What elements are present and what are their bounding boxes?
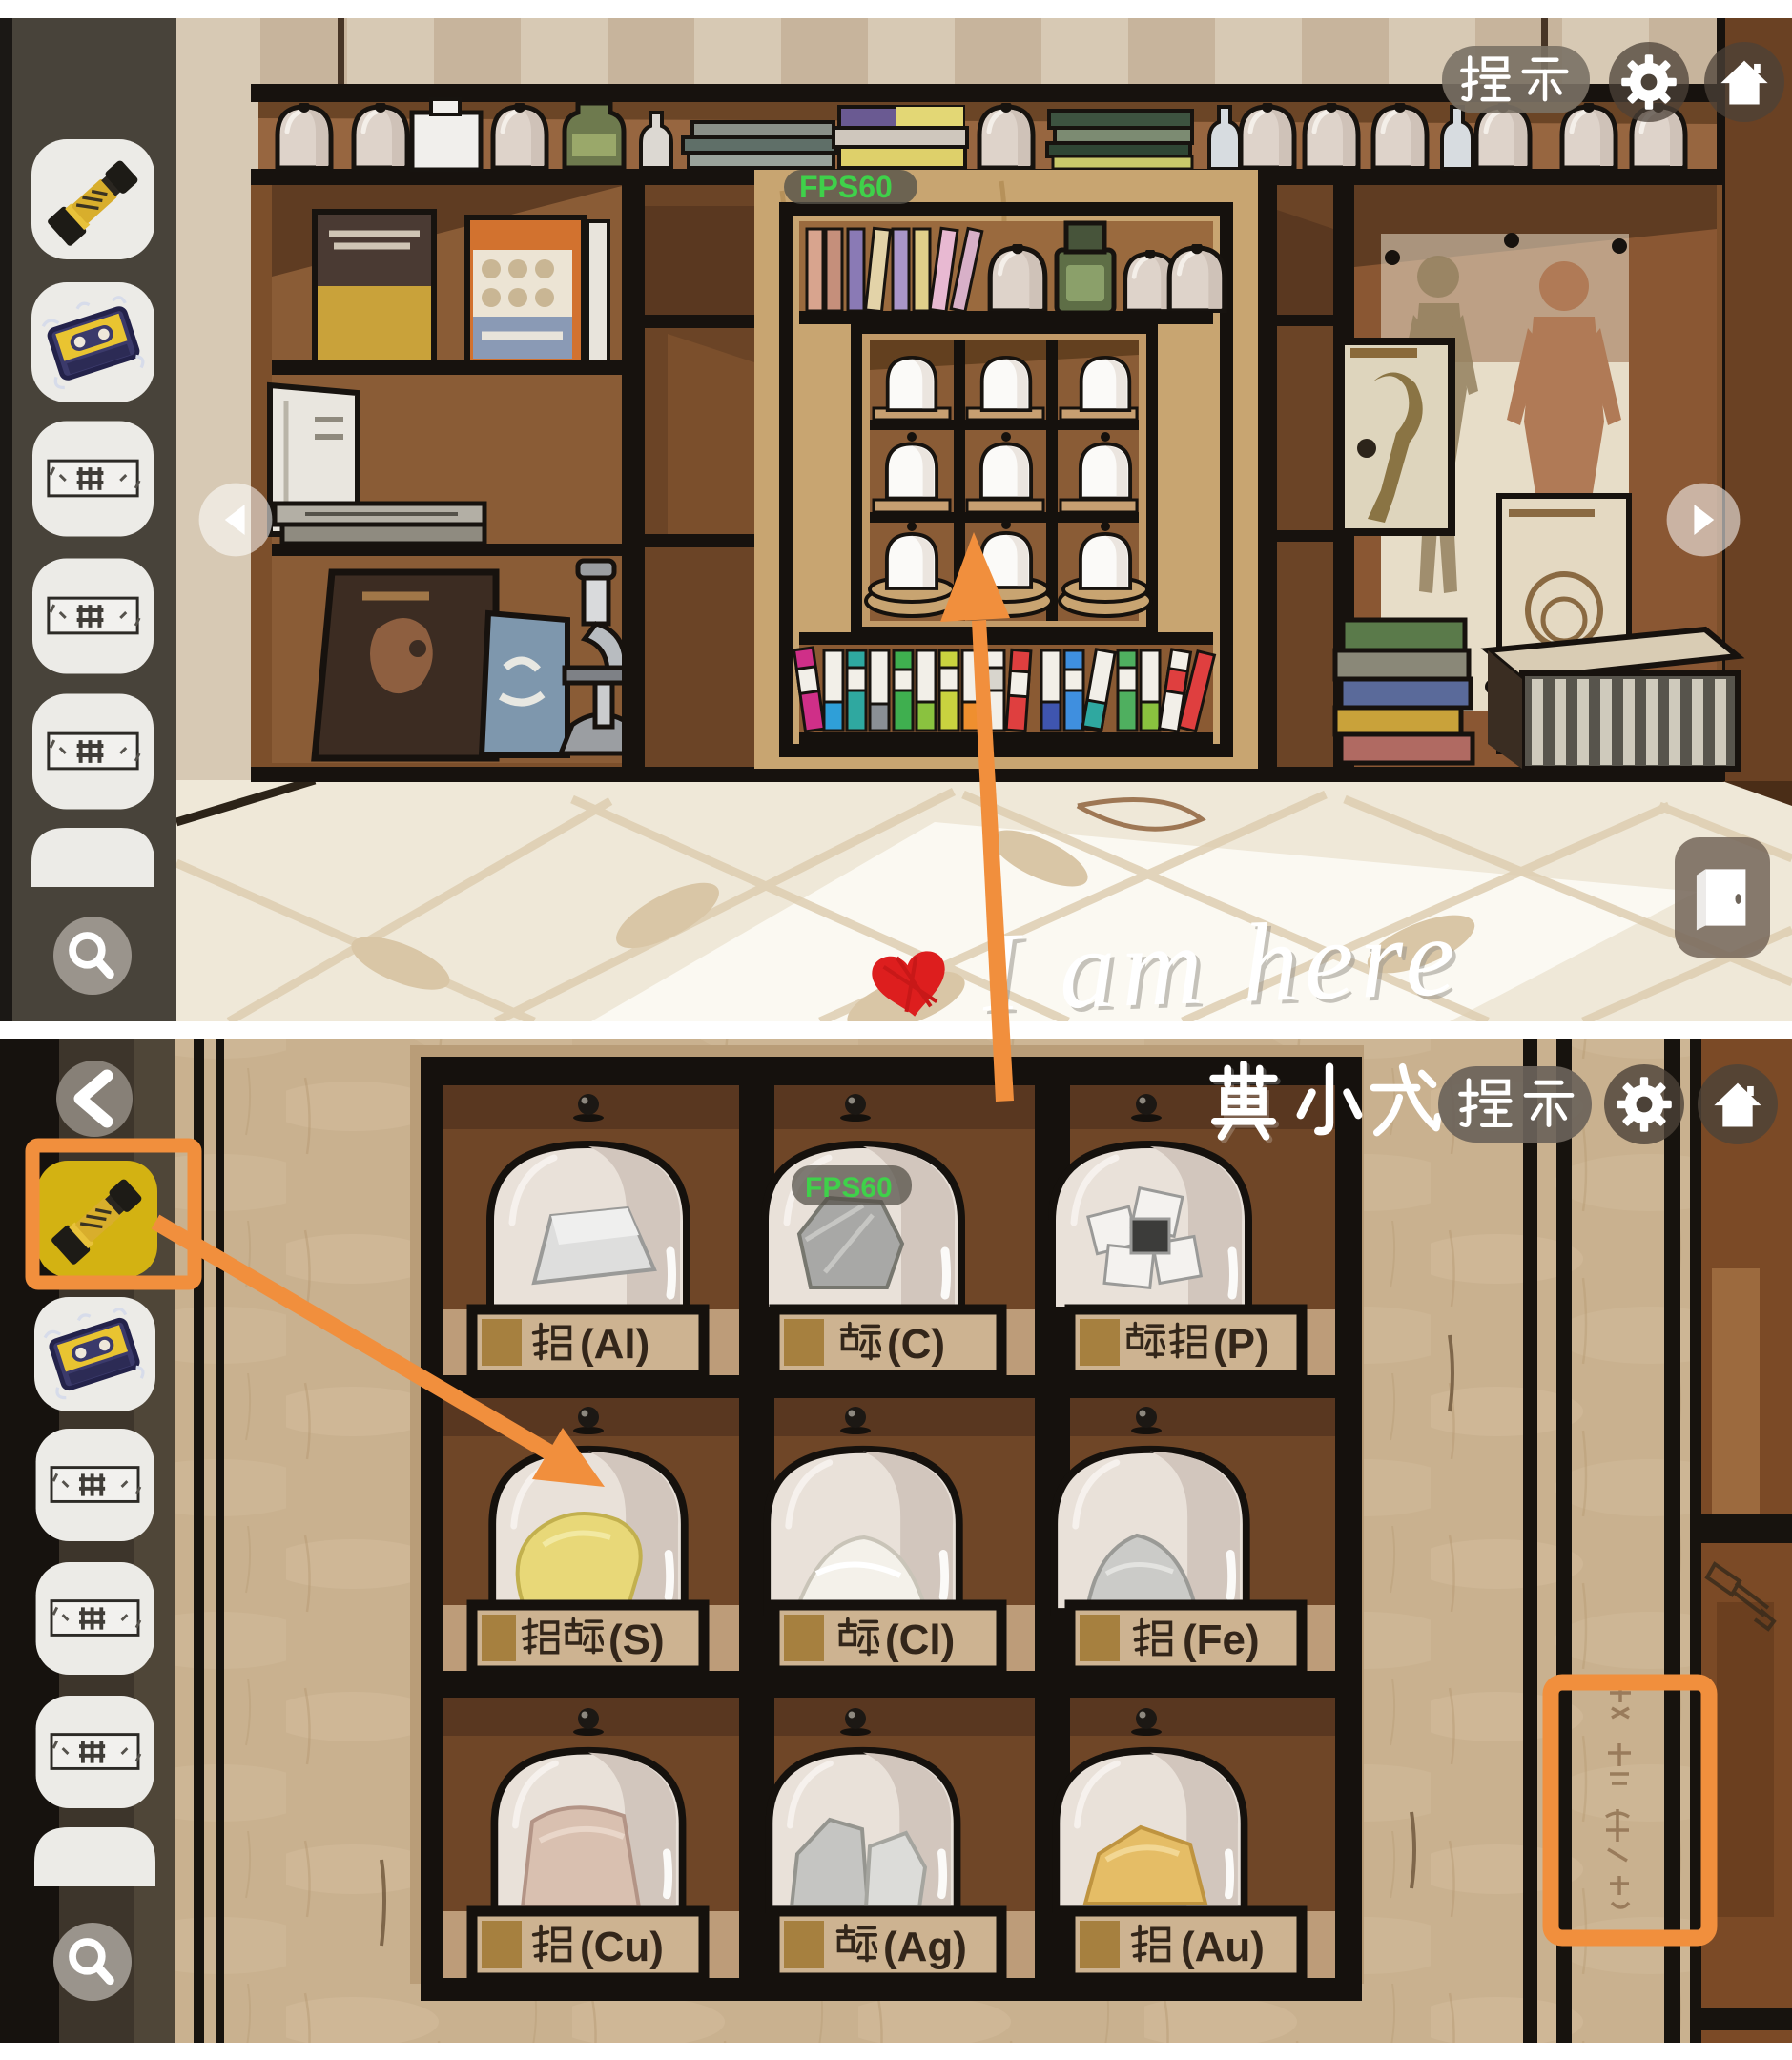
svg-text:(Al): (Al) <box>580 1321 649 1368</box>
svg-text:FPS60: FPS60 <box>805 1172 893 1204</box>
svg-text:(P): (P) <box>1213 1321 1269 1368</box>
svg-text:(Cu): (Cu) <box>580 1924 664 1970</box>
svg-text:(Au): (Au) <box>1181 1924 1265 1970</box>
svg-text:FPS60: FPS60 <box>799 170 893 204</box>
svg-text:I am here: I am here <box>979 894 1463 1035</box>
svg-text:(Fe): (Fe) <box>1183 1617 1260 1663</box>
svg-text:(Cl): (Cl) <box>885 1617 955 1663</box>
svg-text:(Ag): (Ag) <box>883 1924 967 1970</box>
svg-text:(C): (C) <box>887 1321 945 1368</box>
svg-text:(S): (S) <box>608 1617 665 1663</box>
